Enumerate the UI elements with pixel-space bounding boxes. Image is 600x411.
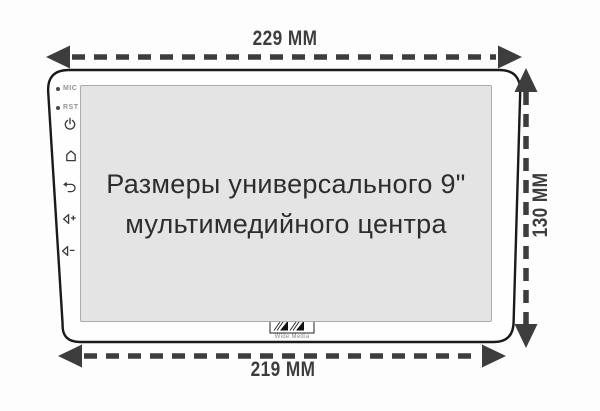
device-screen: Размеры универсального 9" мультимедийног…: [80, 85, 492, 322]
screen-caption-line2: мультимедийного центра: [125, 204, 447, 244]
mic-hole-icon: [56, 87, 60, 91]
volume-down-icon: [61, 245, 77, 257]
home-icon: [64, 149, 78, 162]
reset-hole-icon: [56, 106, 60, 110]
dimension-label-top-width: 229 MM: [228, 28, 343, 50]
mic-hole: MIC: [56, 85, 77, 92]
arrow-right-icon: [482, 345, 506, 368]
brand-name: Wide Media: [259, 333, 325, 341]
screen-caption-line1: Размеры универсального 9": [106, 164, 465, 204]
reset-label: RST: [63, 104, 79, 111]
arrow-left-icon: [46, 46, 70, 69]
dimension-label-height: 130 MM: [530, 148, 552, 263]
diagram-canvas: 229 MM 219 MM 130 MM Размеры универсальн…: [0, 0, 600, 411]
back-icon: [62, 181, 77, 194]
arrow-left-icon: [58, 345, 82, 368]
arrow-down-icon: [515, 324, 538, 348]
mic-label: MIC: [63, 85, 77, 92]
power-icon: [63, 117, 77, 131]
reset-hole: RST: [56, 104, 79, 111]
arrow-right-icon: [498, 46, 522, 69]
dimension-label-bottom-width: 219 MM: [226, 359, 341, 381]
volume-up-icon: [62, 213, 78, 225]
